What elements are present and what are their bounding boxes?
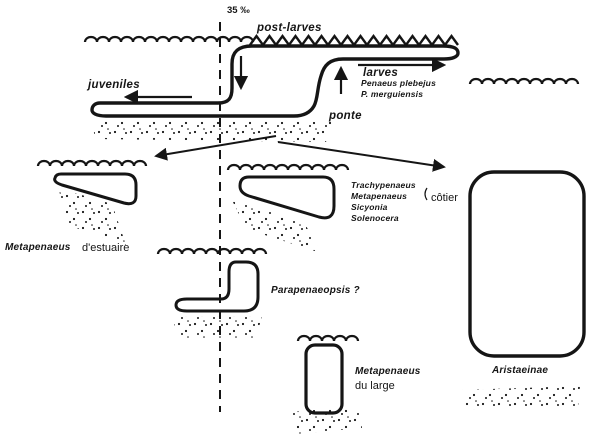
deep-sea-range-rect	[470, 172, 584, 356]
sediment-deep-sea-panel	[462, 386, 580, 410]
spawning-label: ponte	[328, 110, 362, 122]
sea-surface-wave-estuary-panel	[38, 161, 146, 166]
coastal-genus-2: Metapenaeus	[351, 191, 407, 201]
coastal-label: côtier	[431, 192, 458, 204]
sea-surface-wave-left	[85, 37, 253, 42]
sediment-coastal-panel	[231, 198, 321, 253]
deep-sea-label: Aristaeinae	[491, 365, 548, 376]
parapenaeopsis-label: Parapenaeopsis ?	[271, 285, 360, 296]
coastal-genus-1: Trachypenaeus	[351, 180, 416, 190]
sediment-estuary-panel	[58, 188, 126, 245]
juveniles-label: juveniles	[86, 79, 140, 91]
species-label-1: Penaeus plebejus	[361, 78, 436, 88]
life-cycle-diagram: 35 ‰ post-larves juveniles larves Penaeu…	[0, 0, 600, 442]
post-larvae-label: post-larves	[256, 22, 322, 34]
offshore-range-rect	[306, 345, 342, 413]
estuary-qualifier-label: d'estuaire	[82, 242, 129, 254]
estuary-genus-label: Metapenaeus	[5, 242, 71, 253]
sediment-estuary-bottom	[92, 120, 332, 142]
species-label-2: P. merguiensis	[361, 89, 423, 99]
coastal-genus-4: Solenocera	[351, 213, 399, 223]
salinity-label: 35 ‰	[227, 5, 250, 16]
diagram-canvas: 35 ‰ post-larves juveniles larves Penaeu…	[0, 0, 600, 442]
parapenaeopsis-range-shape	[176, 262, 258, 311]
branch-arrow-to-coastal-panel	[278, 142, 444, 167]
sea-surface-wave-offshore-panel	[298, 336, 358, 341]
sea-surface-wave-parapenaeopsis-panel	[158, 249, 266, 254]
sediment-parapenaeopsis-panel	[172, 316, 262, 338]
coastal-group-brace	[425, 188, 427, 200]
sea-surface-wave-right	[470, 79, 578, 84]
sediment-offshore-panel	[292, 406, 362, 434]
offshore-genus-label: Metapenaeus	[355, 366, 421, 377]
offshore-qualifier-label: du large	[355, 380, 395, 392]
sea-surface-wave-coastal-panel	[228, 165, 348, 170]
sea-surface-zigzag	[250, 36, 458, 45]
coastal-genus-3: Sicyonia	[351, 202, 388, 212]
